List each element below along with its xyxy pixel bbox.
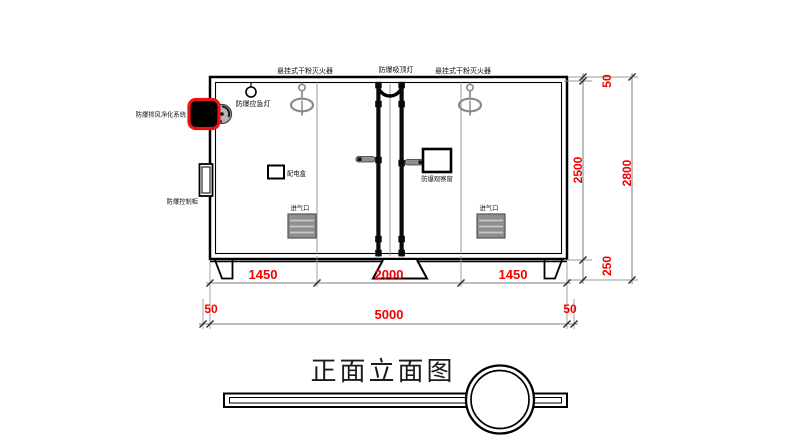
dim-right-total: 2800 — [620, 159, 634, 186]
label-air-inlet-left: 进气口 — [291, 203, 310, 212]
door-node — [398, 82, 405, 89]
distribution-box — [268, 166, 284, 179]
page-title: 正面立面图 — [310, 357, 455, 387]
foot-left — [215, 260, 233, 279]
label-distribution-box: 配电盒 — [287, 169, 307, 178]
dim-outer-total: 5000 — [375, 307, 404, 322]
door-node — [398, 250, 405, 256]
door-node — [375, 236, 382, 243]
dim-bottom-seg2: 2000 — [375, 267, 404, 282]
title-circle-outer — [466, 366, 534, 434]
air-inlet-right — [477, 214, 505, 238]
door-node — [398, 101, 405, 108]
door-node — [375, 157, 382, 164]
door-node — [398, 236, 405, 243]
purification-unit-box[interactable] — [189, 100, 219, 129]
door-node — [375, 250, 382, 256]
air-inlet-left — [288, 214, 316, 238]
label-emergency-light: 防爆应急灯 — [236, 99, 271, 108]
door-node — [375, 101, 382, 108]
door-node — [375, 82, 382, 89]
emergency-light-circle — [246, 87, 256, 97]
fan-hub — [220, 112, 224, 116]
dim-bottom-seg1: 1450 — [249, 267, 278, 282]
dim-outer-left: 50 — [204, 302, 218, 316]
label-ceiling-light: 防爆吸顶灯 — [379, 65, 414, 74]
dim-right-inner: 2500 — [571, 156, 585, 183]
label-left-sprinkler: 悬挂式干粉灭火器 — [277, 66, 333, 75]
door-lock-rod-right — [400, 84, 404, 257]
dim-right-base: 250 — [600, 256, 614, 276]
label-purification-system: 防爆排风净化系统 — [136, 110, 187, 119]
label-control-cabinet: 防爆控制柜 — [167, 197, 198, 206]
control-cabinet-box — [200, 164, 213, 196]
label-observation-window: 防爆观察窗 — [421, 174, 452, 183]
label-right-sprinkler: 悬挂式干粉灭火器 — [435, 66, 491, 75]
dim-outer-right: 50 — [563, 302, 577, 316]
foot-right — [545, 260, 563, 279]
dim-bottom-seg3: 1450 — [499, 267, 528, 282]
dim-right-top: 50 — [600, 74, 614, 88]
door-handle-left-pin — [358, 158, 362, 162]
label-air-inlet-right: 进气口 — [480, 203, 499, 212]
door-node — [398, 160, 405, 167]
control-cabinet — [200, 164, 213, 196]
elevation-drawing: 悬挂式干粉灭火器 防爆吸顶灯 悬挂式干粉灭火器 防爆应急灯 防爆排风净化系统 防… — [0, 0, 800, 445]
observation-window-box — [423, 149, 451, 172]
door-lock-rod-left — [376, 84, 380, 257]
elevation-drawing-page: 悬挂式干粉灭火器 防爆吸顶灯 悬挂式干粉灭火器 防爆应急灯 防爆排风净化系统 防… — [0, 0, 800, 445]
